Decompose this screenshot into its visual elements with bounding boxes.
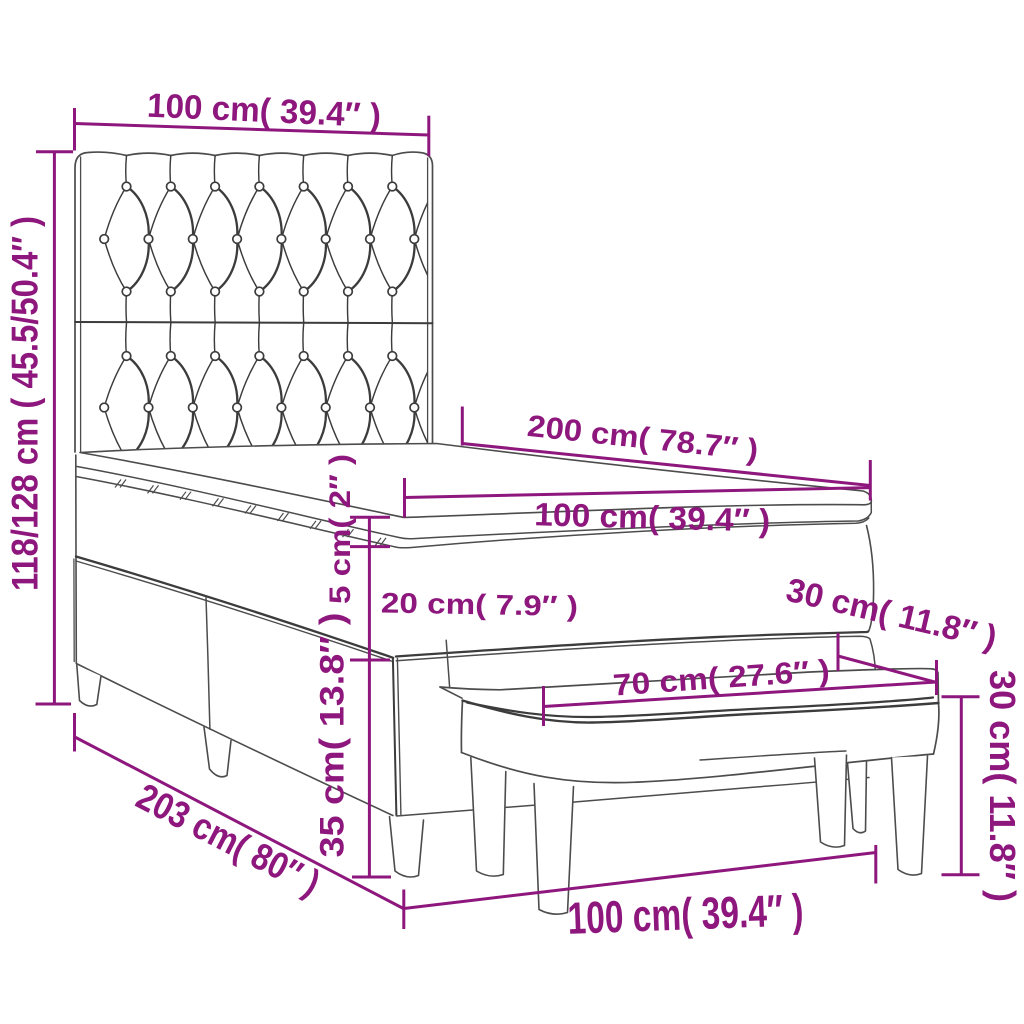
svg-text:35 cm( 13.8″ ): 35 cm( 13.8″ ) xyxy=(314,613,352,858)
svg-text:118/128 cm ( 45.5/50.4″ ): 118/128 cm ( 45.5/50.4″ ) xyxy=(4,216,46,591)
svg-text:5 cm( 2″ ): 5 cm( 2″ ) xyxy=(324,454,357,604)
svg-text:100 cm( 39.4″ ): 100 cm( 39.4″ ) xyxy=(534,496,771,539)
svg-text:30 cm( 11.8″ ): 30 cm( 11.8″ ) xyxy=(982,670,1023,902)
svg-text:20 cm( 7.9″ ): 20 cm( 7.9″ ) xyxy=(381,587,579,622)
svg-text:100 cm( 39.4″ ): 100 cm( 39.4″ ) xyxy=(567,884,805,944)
